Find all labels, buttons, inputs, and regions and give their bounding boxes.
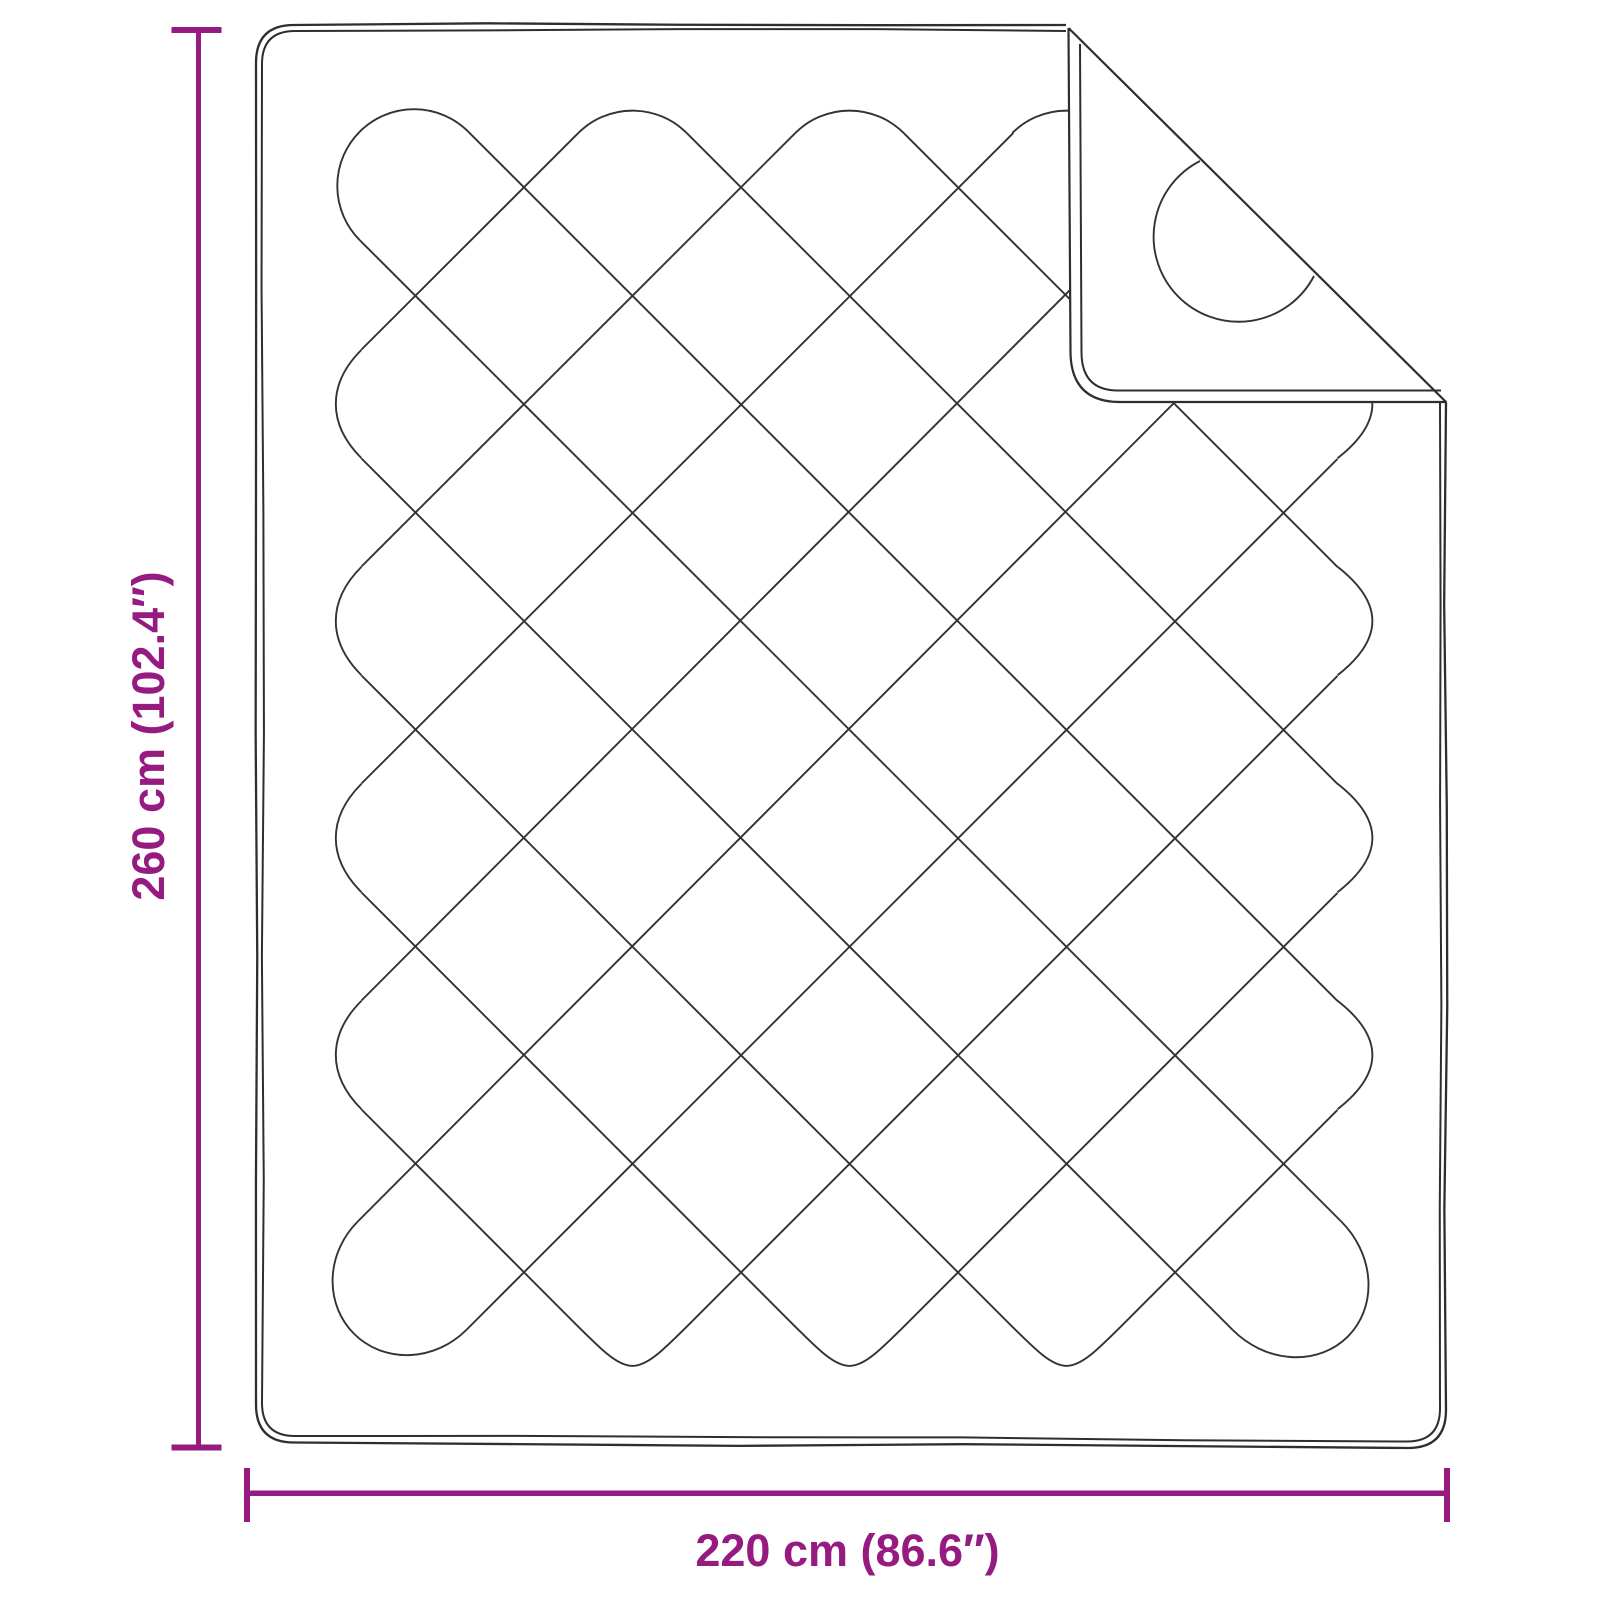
svg-text:220 cm (86.6″): 220 cm (86.6″)	[695, 1525, 999, 1576]
svg-text:260 cm (102.4″): 260 cm (102.4″)	[123, 571, 174, 900]
